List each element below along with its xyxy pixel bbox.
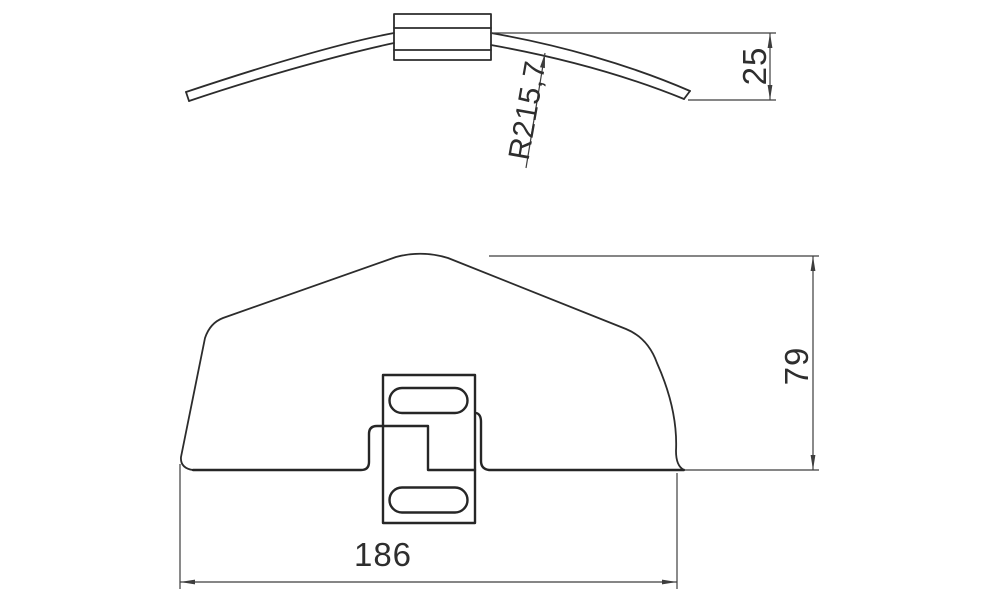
dim-186: 186 — [180, 464, 677, 589]
dim-79: 79 — [489, 256, 819, 470]
bracket-slot-bottom — [390, 488, 468, 513]
clamp-block — [394, 14, 491, 60]
front-view: 186 79 — [180, 254, 819, 589]
dim-25-arrowhead-top — [768, 33, 773, 48]
side-view: 25 R215,7 — [186, 14, 776, 168]
clamp-block-outline — [394, 14, 491, 60]
dome-base-edge — [193, 413, 684, 470]
dim-25-label: 25 — [736, 47, 773, 86]
dim-186-arrowhead-right — [662, 580, 677, 585]
strip-left-upper-edge — [186, 33, 394, 92]
drawing-sheet: 25 R215,7 — [0, 0, 1000, 599]
dome-outline — [181, 254, 684, 470]
base-edge-left — [193, 426, 383, 470]
dim-25-arrowhead-bottom — [768, 85, 773, 100]
strip-left — [186, 33, 394, 101]
dim-186-label: 186 — [354, 536, 412, 573]
radius-label: R215,7 — [503, 58, 553, 162]
strip-right-end-cap — [684, 91, 690, 99]
dim-186-arrowhead-left — [180, 580, 195, 585]
base-edge-right — [476, 413, 684, 470]
dim-79-label: 79 — [778, 347, 815, 386]
strip-left-end-cap — [186, 92, 189, 101]
dim-79-arrowhead-bottom — [811, 455, 816, 470]
radius-callout: R215,7 — [503, 53, 553, 168]
strip-left-lower-edge — [189, 43, 394, 101]
bracket-slot-top — [390, 388, 468, 413]
dim-79-arrowhead-top — [811, 256, 816, 271]
technical-drawing-svg: 25 R215,7 — [0, 0, 1000, 599]
base-edge-center-step — [383, 426, 475, 470]
